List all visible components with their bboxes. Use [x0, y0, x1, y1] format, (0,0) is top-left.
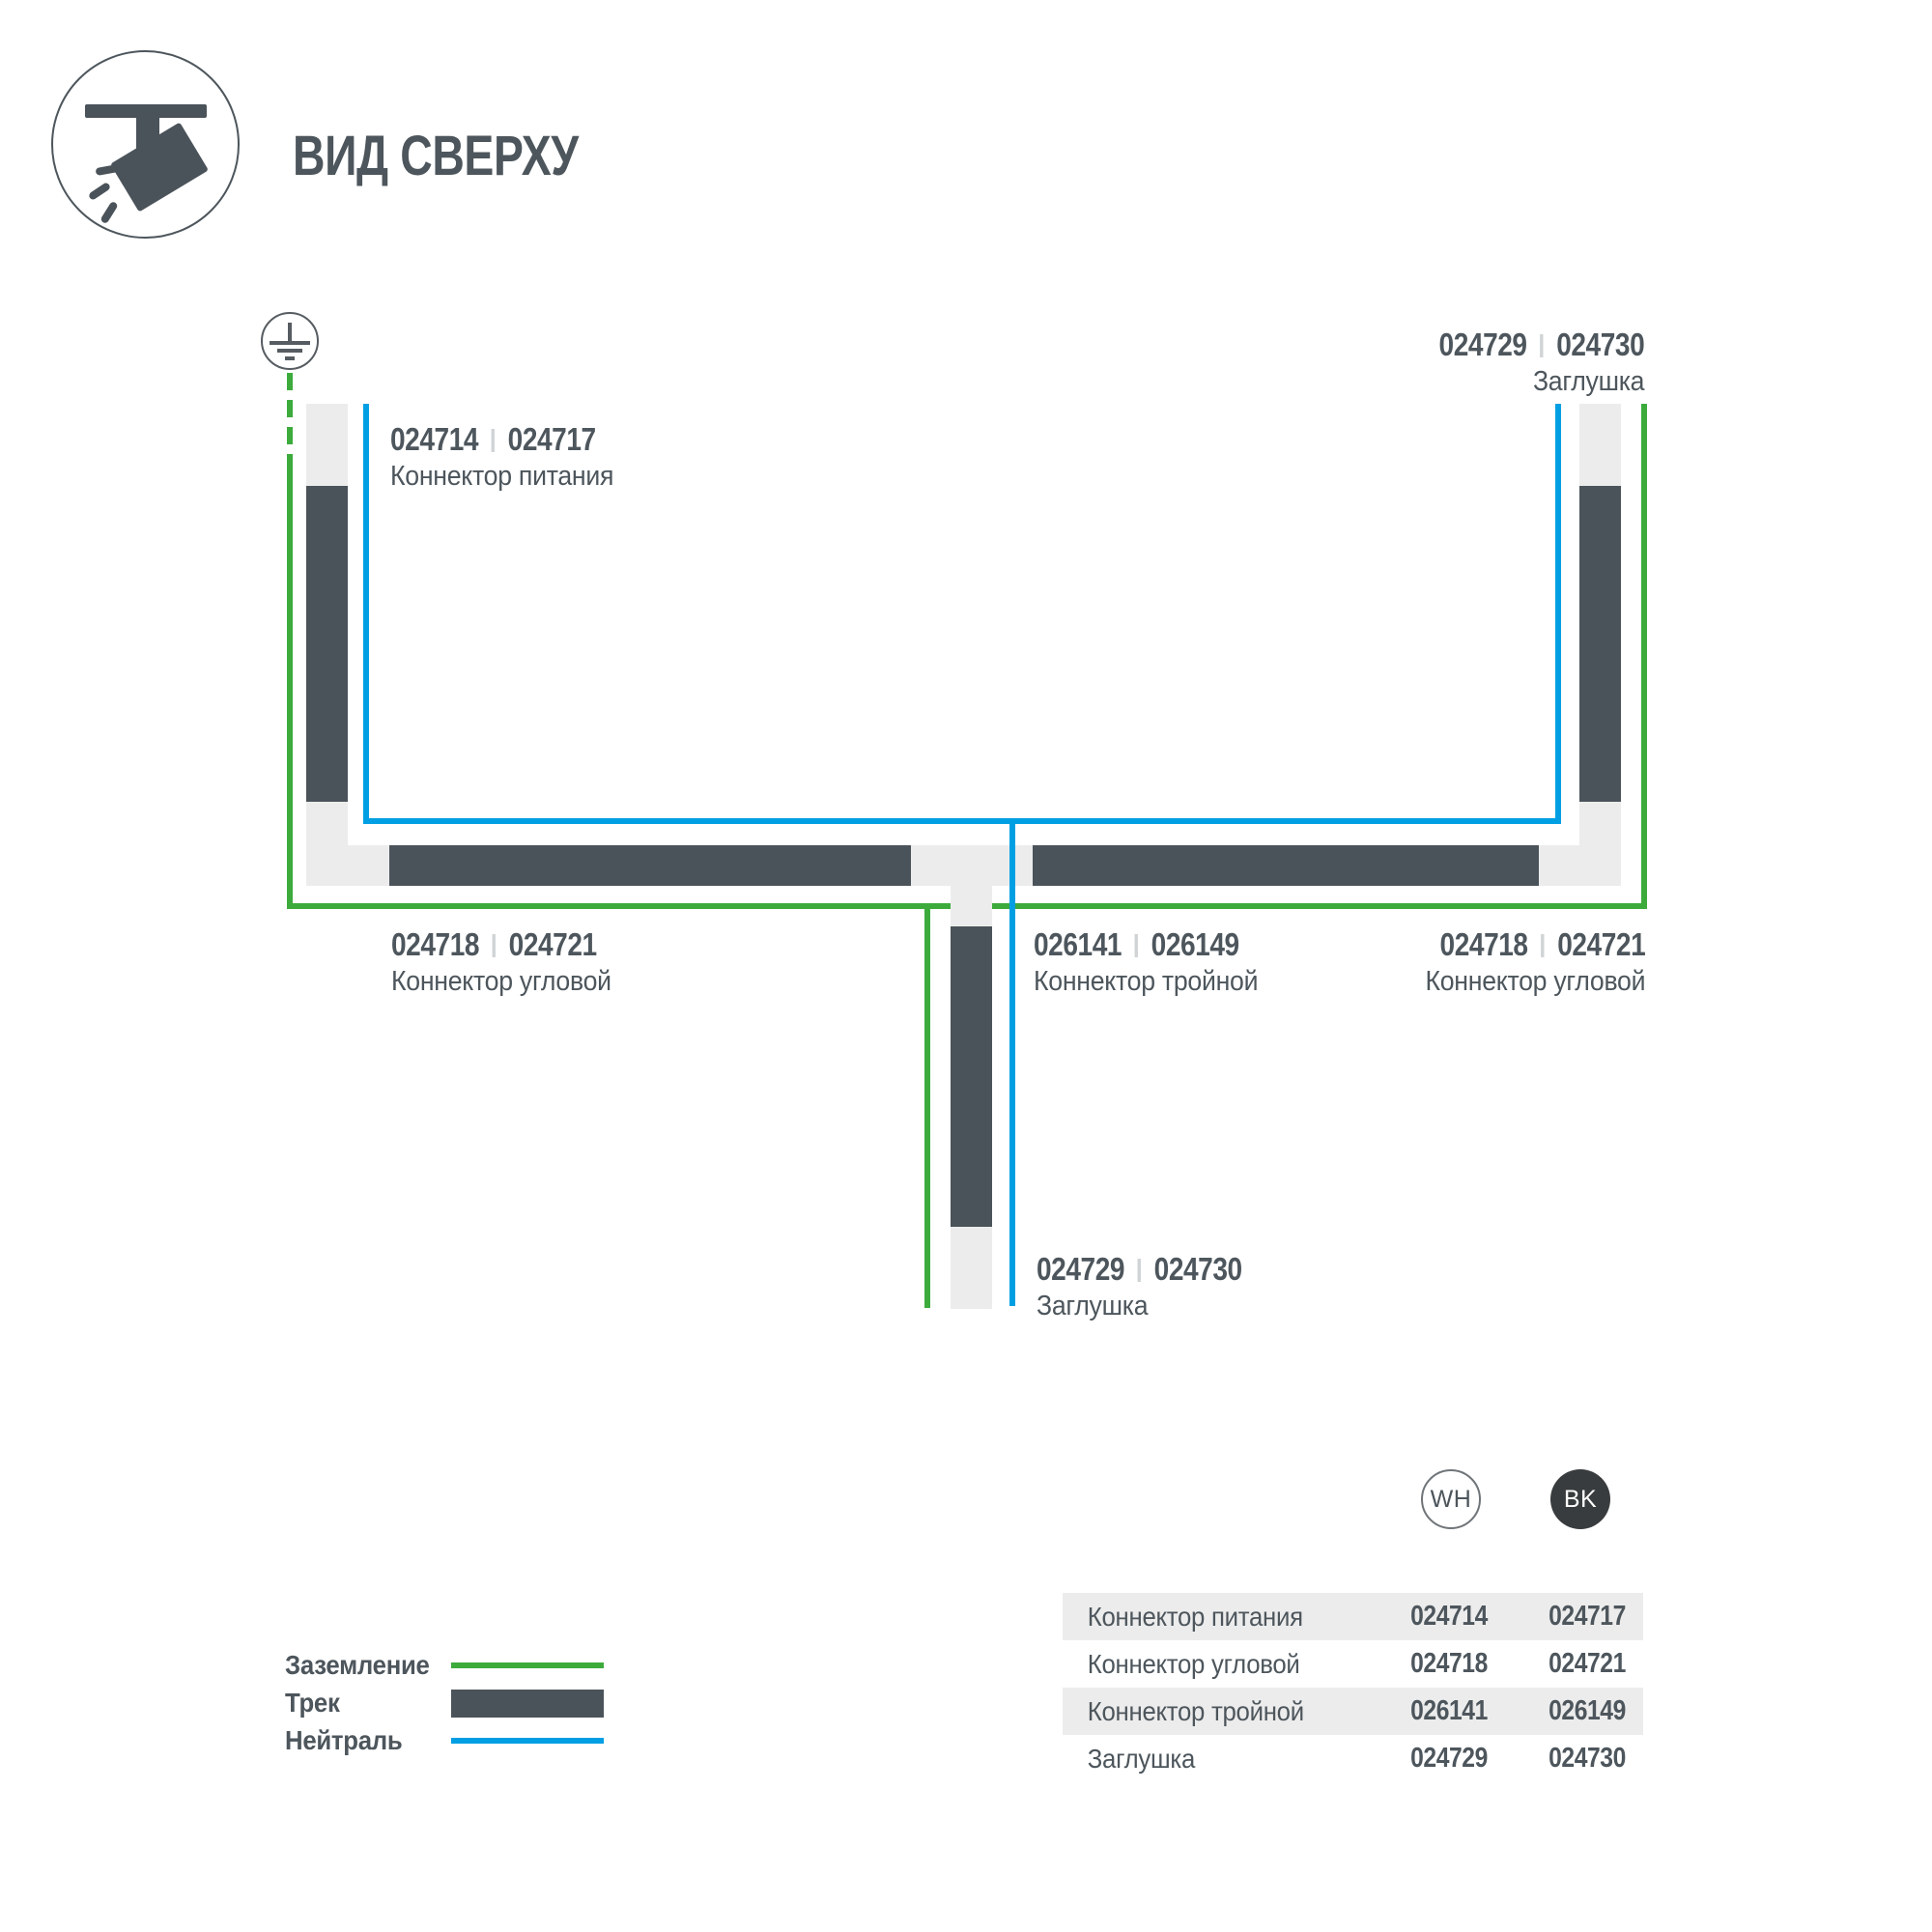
code-divider: [1541, 934, 1544, 957]
table-cell-name: Заглушка: [1063, 1744, 1343, 1775]
label-corner-connector-left: 024718024721 Коннектор угловой: [391, 927, 633, 999]
table-cell-name: Коннектор тройной: [1063, 1696, 1343, 1727]
track-branch-vertical: [951, 926, 992, 1227]
track-swatch: [451, 1690, 604, 1718]
table-row: Заглушка 024729 024730: [1063, 1735, 1643, 1782]
neutral-line-right: [1555, 404, 1561, 824]
label-corner-connector-right: 024718024721 Коннектор угловой: [1404, 927, 1645, 999]
table-cell-bk-code: 024717: [1540, 1601, 1635, 1633]
ground-symbol-icon: [261, 312, 319, 370]
code-divider: [1540, 334, 1543, 357]
table-row: Коннектор питания 024714 024717: [1063, 1593, 1643, 1640]
track-bottom-right: [1033, 845, 1539, 886]
light-ray-icon: [88, 182, 111, 201]
legend-label: Заземление: [285, 1650, 438, 1681]
table-row: Коннектор тройной 026141 026149: [1063, 1688, 1643, 1735]
ground-line-branch: [924, 909, 930, 1308]
ground-line-swatch: [451, 1662, 604, 1668]
table-row: Коннектор угловой 024718 024721: [1063, 1640, 1643, 1688]
code-divider: [1135, 934, 1138, 957]
label-power-connector: 024714024717 Коннектор питания: [390, 422, 633, 494]
table-cell-bk-code: 026149: [1540, 1695, 1635, 1727]
label-triple-connector: 026141026149 Коннектор тройной: [1034, 927, 1277, 999]
table-cell-wh-code: 024729: [1379, 1743, 1520, 1775]
variant-white-badge: WH: [1421, 1469, 1481, 1529]
part-codes: 024729024730: [1438, 327, 1644, 362]
legend-label: Нейтраль: [285, 1725, 438, 1756]
label-endcap-top: 024729024730 Заглушка: [1403, 327, 1644, 399]
ground-line-left: [287, 454, 293, 909]
table-cell-wh-code: 024718: [1379, 1648, 1520, 1680]
neutral-line-branch: [1009, 824, 1015, 1306]
table-cell-bk-code: 024721: [1540, 1648, 1635, 1680]
code-divider: [493, 934, 496, 957]
neutral-line-left: [363, 404, 369, 824]
track-spotlight-icon: [51, 50, 240, 239]
table-cell-wh-code: 026141: [1379, 1695, 1520, 1727]
code-divider: [492, 429, 495, 452]
variant-black-badge: BK: [1550, 1469, 1610, 1529]
corner-connector-left: [348, 845, 389, 886]
part-codes: 024729024730: [1037, 1252, 1242, 1287]
triple-connector-stem: [951, 886, 992, 926]
table-cell-name: Коннектор питания: [1063, 1602, 1343, 1633]
spotlight-head: [110, 123, 209, 213]
top-view-track-diagram-page: ВИД СВЕРХУ 024714024717 Коннектор питани…: [0, 0, 1932, 1932]
label-endcap-bottom: 024729024730 Заглушка: [1037, 1252, 1278, 1323]
page-title: ВИД СВЕРХУ: [293, 124, 579, 188]
part-codes-table: Коннектор питания 024714 024717 Коннекто…: [1063, 1593, 1643, 1782]
part-name: Коннектор угловой: [1423, 964, 1645, 999]
neutral-line-swatch: [451, 1738, 604, 1744]
table-cell-bk-code: 024730: [1540, 1743, 1635, 1775]
ground-line-right: [1641, 404, 1647, 909]
table-cell-name: Коннектор угловой: [1063, 1649, 1343, 1680]
part-name: Заглушка: [1037, 1289, 1259, 1323]
part-name: Заглушка: [1422, 364, 1644, 399]
part-codes: 024714024717: [390, 422, 597, 457]
track-left-vertical: [306, 486, 348, 802]
track-right-vertical: [1579, 486, 1621, 802]
ground-line-dashed: [287, 373, 293, 456]
part-codes: 024718024721: [1439, 927, 1645, 962]
track-bottom-left: [389, 845, 911, 886]
legend-row-neutral: Нейтраль: [285, 1725, 609, 1756]
legend-row-track: Трек: [285, 1688, 609, 1719]
legend-row-ground: Заземление: [285, 1650, 609, 1681]
neutral-line-bottom: [363, 818, 1561, 824]
part-name: Коннектор угловой: [391, 964, 613, 999]
corner-connector-right: [1539, 845, 1580, 886]
legend-label: Трек: [285, 1688, 438, 1719]
part-name: Коннектор тройной: [1034, 964, 1258, 999]
part-name: Коннектор питания: [390, 459, 613, 494]
part-codes: 026141026149: [1034, 927, 1241, 962]
endcap-segment-bottom: [951, 1227, 992, 1309]
table-cell-wh-code: 024714: [1379, 1601, 1520, 1633]
part-codes: 024718024721: [391, 927, 597, 962]
code-divider: [1138, 1259, 1141, 1282]
light-ray-icon: [99, 201, 119, 225]
